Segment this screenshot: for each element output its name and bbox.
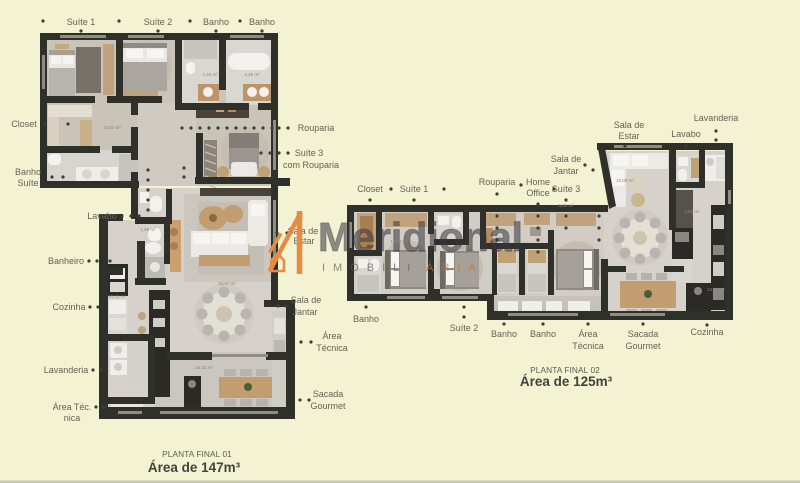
svg-text:16,32 m²: 16,32 m² — [195, 365, 213, 370]
svg-text:Área de 125m³: Área de 125m³ — [520, 374, 613, 389]
svg-text:Home: Home — [526, 177, 550, 187]
svg-text:Rouparia: Rouparia — [298, 123, 335, 133]
svg-text:11,98 m²: 11,98 m² — [390, 239, 408, 244]
svg-text:Suíte 2: Suíte 2 — [144, 17, 173, 27]
svg-text:Sacada: Sacada — [313, 389, 344, 399]
svg-text:Meridional: Meridional — [318, 214, 523, 260]
svg-text:Lavanderia: Lavanderia — [694, 113, 739, 123]
svg-text:13,02 m²: 13,02 m² — [103, 125, 121, 130]
svg-text:IMOBILI: IMOBILI — [322, 262, 418, 274]
svg-text:Jantar: Jantar — [292, 307, 317, 317]
svg-text:9,04 m²: 9,04 m² — [453, 245, 469, 250]
svg-text:35,97 m²: 35,97 m² — [218, 281, 236, 286]
svg-text:Closet: Closet — [357, 184, 383, 194]
svg-text:Suíte: Suíte — [17, 178, 38, 188]
svg-text:Cozinha: Cozinha — [690, 327, 723, 337]
svg-text:Banho: Banho — [249, 17, 275, 27]
svg-text:Sala de: Sala de — [551, 154, 582, 164]
svg-text:Sala de: Sala de — [291, 295, 322, 305]
svg-text:4,52 m²: 4,52 m² — [684, 209, 700, 214]
svg-text:Área: Área — [578, 329, 597, 339]
svg-text:10,02 m²: 10,02 m² — [108, 294, 126, 299]
svg-text:Banho: Banho — [15, 167, 41, 177]
svg-text:Lavabo: Lavabo — [671, 129, 701, 139]
svg-text:Rouparia: Rouparia — [479, 177, 516, 187]
svg-text:Cozinha: Cozinha — [52, 302, 85, 312]
svg-text:10,08 m²: 10,08 m² — [616, 178, 634, 183]
svg-text:Suíte 1: Suíte 1 — [400, 184, 429, 194]
svg-text:Banho: Banho — [353, 314, 379, 324]
svg-text:4,25 m²: 4,25 m² — [202, 72, 218, 77]
svg-text:5,28 m²: 5,28 m² — [558, 203, 574, 208]
svg-text:1,65 m²: 1,65 m² — [140, 227, 156, 232]
svg-text:Suíte 1: Suíte 1 — [67, 17, 96, 27]
svg-text:Closet: Closet — [11, 119, 37, 129]
svg-text:12,92 m²: 12,92 m² — [707, 287, 725, 292]
svg-text:Jantar: Jantar — [553, 166, 578, 176]
svg-text:Lavabo: Lavabo — [87, 211, 117, 221]
svg-text:Área Téc.: Área Téc. — [53, 402, 92, 412]
svg-text:com Rouparia: com Rouparia — [283, 160, 339, 170]
svg-text:Suíte 2: Suíte 2 — [450, 323, 479, 333]
svg-text:nica: nica — [64, 413, 81, 423]
svg-text:Técnica: Técnica — [316, 343, 348, 353]
svg-text:4,25 m²: 4,25 m² — [244, 72, 260, 77]
svg-text:Área de 147m³: Área de 147m³ — [148, 460, 241, 475]
svg-text:Gourmet: Gourmet — [625, 341, 661, 351]
svg-text:Banho: Banho — [530, 329, 556, 339]
svg-text:Office: Office — [526, 188, 549, 198]
svg-text:Lavanderia: Lavanderia — [44, 365, 89, 375]
svg-text:Gourmet: Gourmet — [310, 401, 346, 411]
svg-text:Suíte 3: Suíte 3 — [295, 148, 324, 158]
svg-text:Banho: Banho — [203, 17, 229, 27]
svg-text:Estar: Estar — [618, 131, 639, 141]
svg-text:Banho: Banho — [491, 329, 517, 339]
svg-text:Suíte 3: Suíte 3 — [552, 184, 581, 194]
svg-text:Banheiro: Banheiro — [48, 256, 84, 266]
svg-text:Estar: Estar — [293, 236, 314, 246]
svg-text:Sacada: Sacada — [628, 329, 659, 339]
svg-text:ÁRIA: ÁRIA — [426, 261, 484, 274]
svg-text:Área: Área — [322, 331, 341, 341]
svg-text:Sala de: Sala de — [614, 120, 645, 130]
svg-text:PLANTA FINAL 01: PLANTA FINAL 01 — [162, 449, 232, 459]
svg-text:Técnica: Técnica — [572, 341, 604, 351]
